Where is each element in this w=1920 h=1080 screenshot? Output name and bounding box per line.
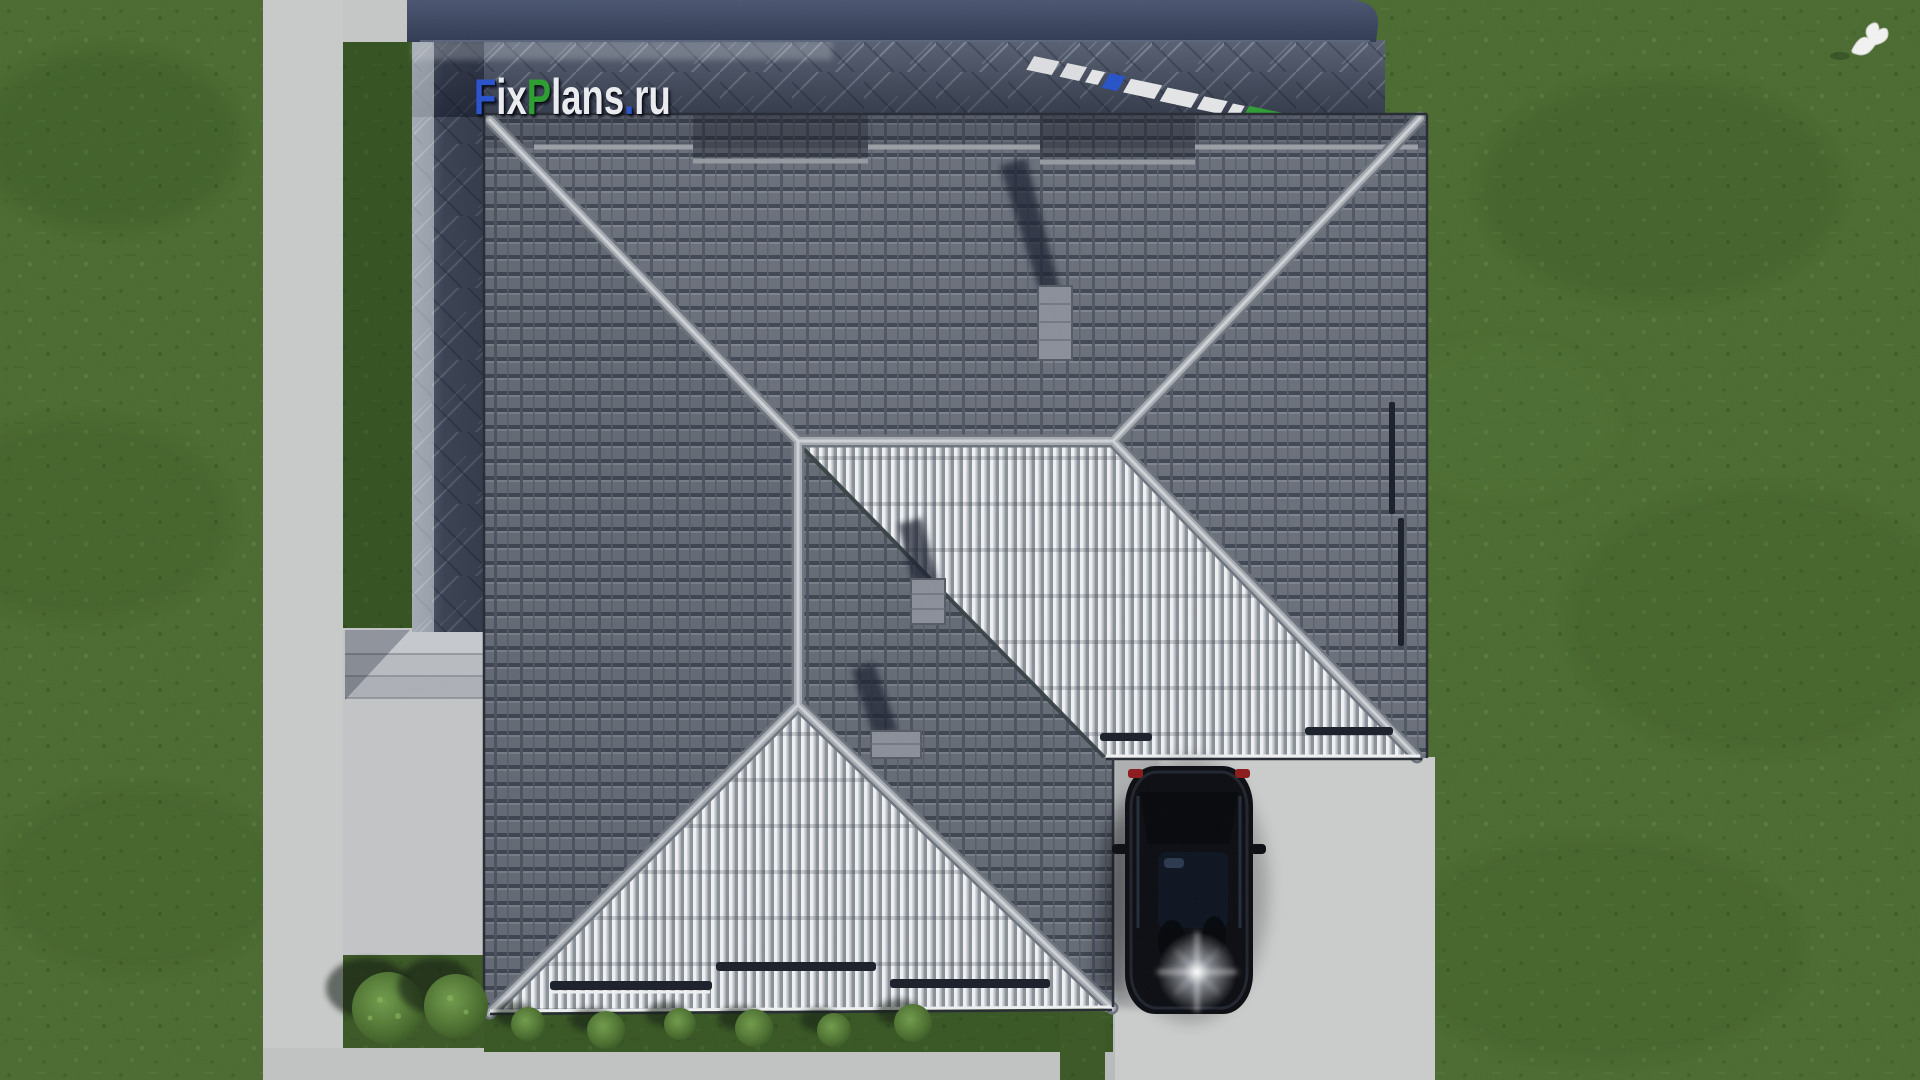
aerial-render-scene: FixPlans.ru [0,0,1920,1080]
watermark-seg-p: P [527,68,551,126]
watermark-seg-ix: ix [496,68,526,126]
watermark-text: FixPlans.ru [474,68,671,126]
watermark-seg-ru: ru [634,68,671,126]
watermark-seg-dot: . [624,68,634,126]
render-canvas [0,0,1920,1080]
watermark-seg-f: F [474,68,496,126]
watermark-seg-lans: lans [551,68,624,126]
noise-overlay [0,0,1920,1080]
